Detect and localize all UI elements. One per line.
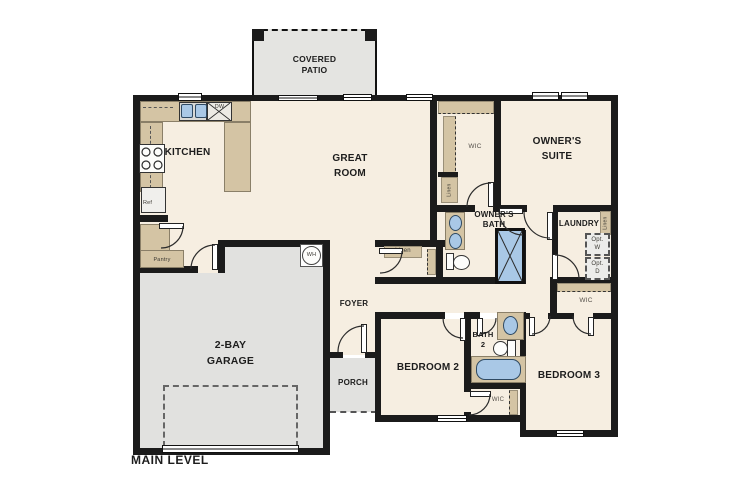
counter-dashed-line <box>143 107 173 108</box>
door-leaf-owners-wic <box>488 182 494 207</box>
closet-rod <box>443 116 456 176</box>
kitchen-label: KITCHEN <box>150 147 225 160</box>
door-leaf-garage-entry <box>212 244 218 270</box>
window <box>178 93 202 101</box>
garage-door <box>162 445 299 453</box>
optional-dryer: Opt. D <box>585 257 610 280</box>
door-leaf-bedroom2 <box>460 318 466 341</box>
window <box>343 94 372 101</box>
wall <box>375 312 445 319</box>
closet-rod <box>557 283 611 292</box>
window <box>556 430 584 437</box>
wall <box>593 313 611 319</box>
patio-post <box>252 29 264 41</box>
kitchen-island-counter <box>224 122 251 192</box>
wall <box>375 312 381 422</box>
water-heater-label: WH <box>307 252 317 259</box>
bedroom3-wic-label: WIC <box>570 297 602 305</box>
main-level-label: MAIN LEVEL <box>131 453 271 468</box>
owners-suite-label: OWNER'S SUITE <box>517 134 597 164</box>
dishwasher-label: DW <box>207 104 232 111</box>
wall <box>494 101 501 212</box>
opt-dryer-label: Opt. D <box>591 261 603 276</box>
bedroom3-label: BEDROOM 3 <box>528 370 610 383</box>
kitchen-sink-basin <box>195 104 207 118</box>
door-leaf-bedroom3 <box>529 317 535 336</box>
wall <box>133 215 168 222</box>
pantry-label: Pantry <box>141 257 183 264</box>
water-heater-circle: WH <box>302 246 321 265</box>
toilet-bowl <box>453 255 470 270</box>
patio-slider-door <box>278 95 318 101</box>
garage-bay-dashed-outline <box>163 385 298 447</box>
wall <box>430 101 437 247</box>
bath2-label: BATH 2 <box>470 330 496 350</box>
wall <box>611 95 618 437</box>
foyer-label: FOYER <box>333 299 375 309</box>
wall <box>323 240 330 455</box>
toilet-tank <box>507 340 516 357</box>
linen-label: Linen <box>446 183 452 196</box>
wall <box>548 313 574 319</box>
floor-plan: COVERED PATIO <box>0 0 750 500</box>
window <box>437 415 467 422</box>
wall <box>471 383 526 389</box>
shower <box>495 228 525 284</box>
bedroom2-label: BEDROOM 2 <box>388 362 468 375</box>
door-leaf-linen <box>379 248 403 254</box>
closet-rod <box>438 101 494 114</box>
door-leaf-bedroom3-wic <box>588 317 594 336</box>
vanity-sink <box>449 215 462 231</box>
vanity-sink <box>449 233 462 249</box>
door-leaf-pantry <box>159 223 184 229</box>
window <box>406 94 433 101</box>
porch-label: PORCH <box>331 378 375 388</box>
owners-wic-label: WIC <box>460 143 490 151</box>
owners-bath-label: OWNER'S BATH <box>462 210 526 230</box>
linen-closet-owner: Linen <box>441 177 458 203</box>
patio-post <box>365 29 377 41</box>
bathtub <box>476 359 521 380</box>
laundry-label: LAUNDRY <box>553 219 605 229</box>
opt-washer-label: Opt. W <box>591 237 603 252</box>
window <box>532 92 559 100</box>
optional-washer: Opt. W <box>585 233 610 256</box>
door-leaf-laundry <box>552 254 558 280</box>
door-leaf-front-door <box>361 324 367 353</box>
great-room-label: GREAT ROOM <box>310 151 390 181</box>
window <box>561 92 588 100</box>
bedroom2-wic-label: WIC <box>482 397 514 405</box>
refrigerator-label: Ref <box>141 200 166 207</box>
bath2-sink <box>503 316 518 335</box>
garage-label: 2-BAY GARAGE <box>178 338 283 370</box>
closet-rod <box>427 249 436 275</box>
porch-edge-dashed <box>330 411 377 413</box>
covered-patio-label: COVERED PATIO <box>252 54 377 75</box>
kitchen-sink-basin <box>181 104 193 118</box>
